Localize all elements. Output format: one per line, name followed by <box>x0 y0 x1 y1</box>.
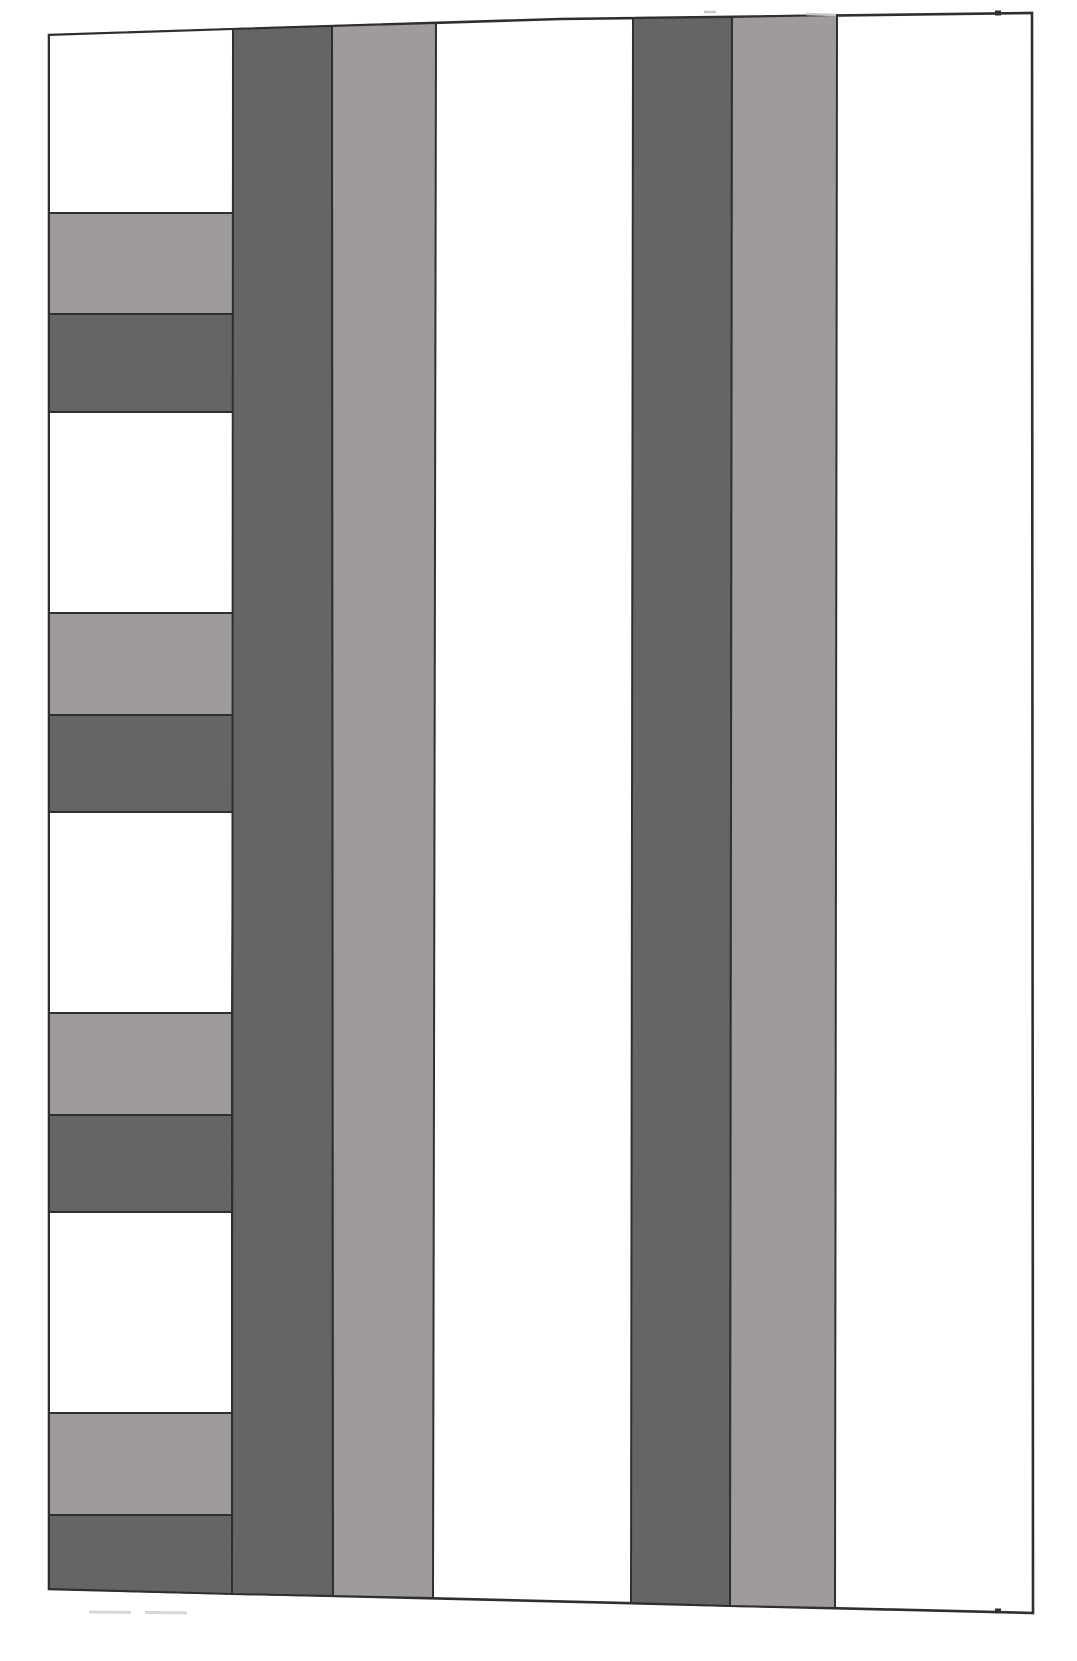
striped-pattern-figure <box>0 0 1077 1661</box>
vertical-stripe-2-light <box>332 23 436 1598</box>
left-column-band-4-white <box>49 412 233 613</box>
vertical-stripe-4-light <box>730 15 837 1608</box>
bottom-faint-dashed-mark <box>89 1612 200 1613</box>
top-faint-mark-2 <box>806 14 836 15</box>
left-column-band-1-white <box>49 29 233 213</box>
vertical-stripe-1-dark <box>232 26 333 1596</box>
page <box>0 0 1077 1661</box>
left-column-band-7-white <box>49 812 233 1013</box>
left-column-band-6-dark <box>49 715 233 812</box>
vertical-stripe-3-dark <box>631 17 732 1606</box>
left-column-band-10-white <box>49 1212 232 1413</box>
left-column-band-3-dark <box>49 314 233 412</box>
left-column-band-12-dark <box>49 1515 232 1594</box>
left-column-band-8-light <box>49 1013 232 1115</box>
left-column-band-5-light <box>49 613 233 715</box>
left-column-band-9-dark <box>49 1115 232 1212</box>
left-column-band-11-light <box>49 1413 232 1515</box>
left-column-band-2-light <box>49 213 233 314</box>
